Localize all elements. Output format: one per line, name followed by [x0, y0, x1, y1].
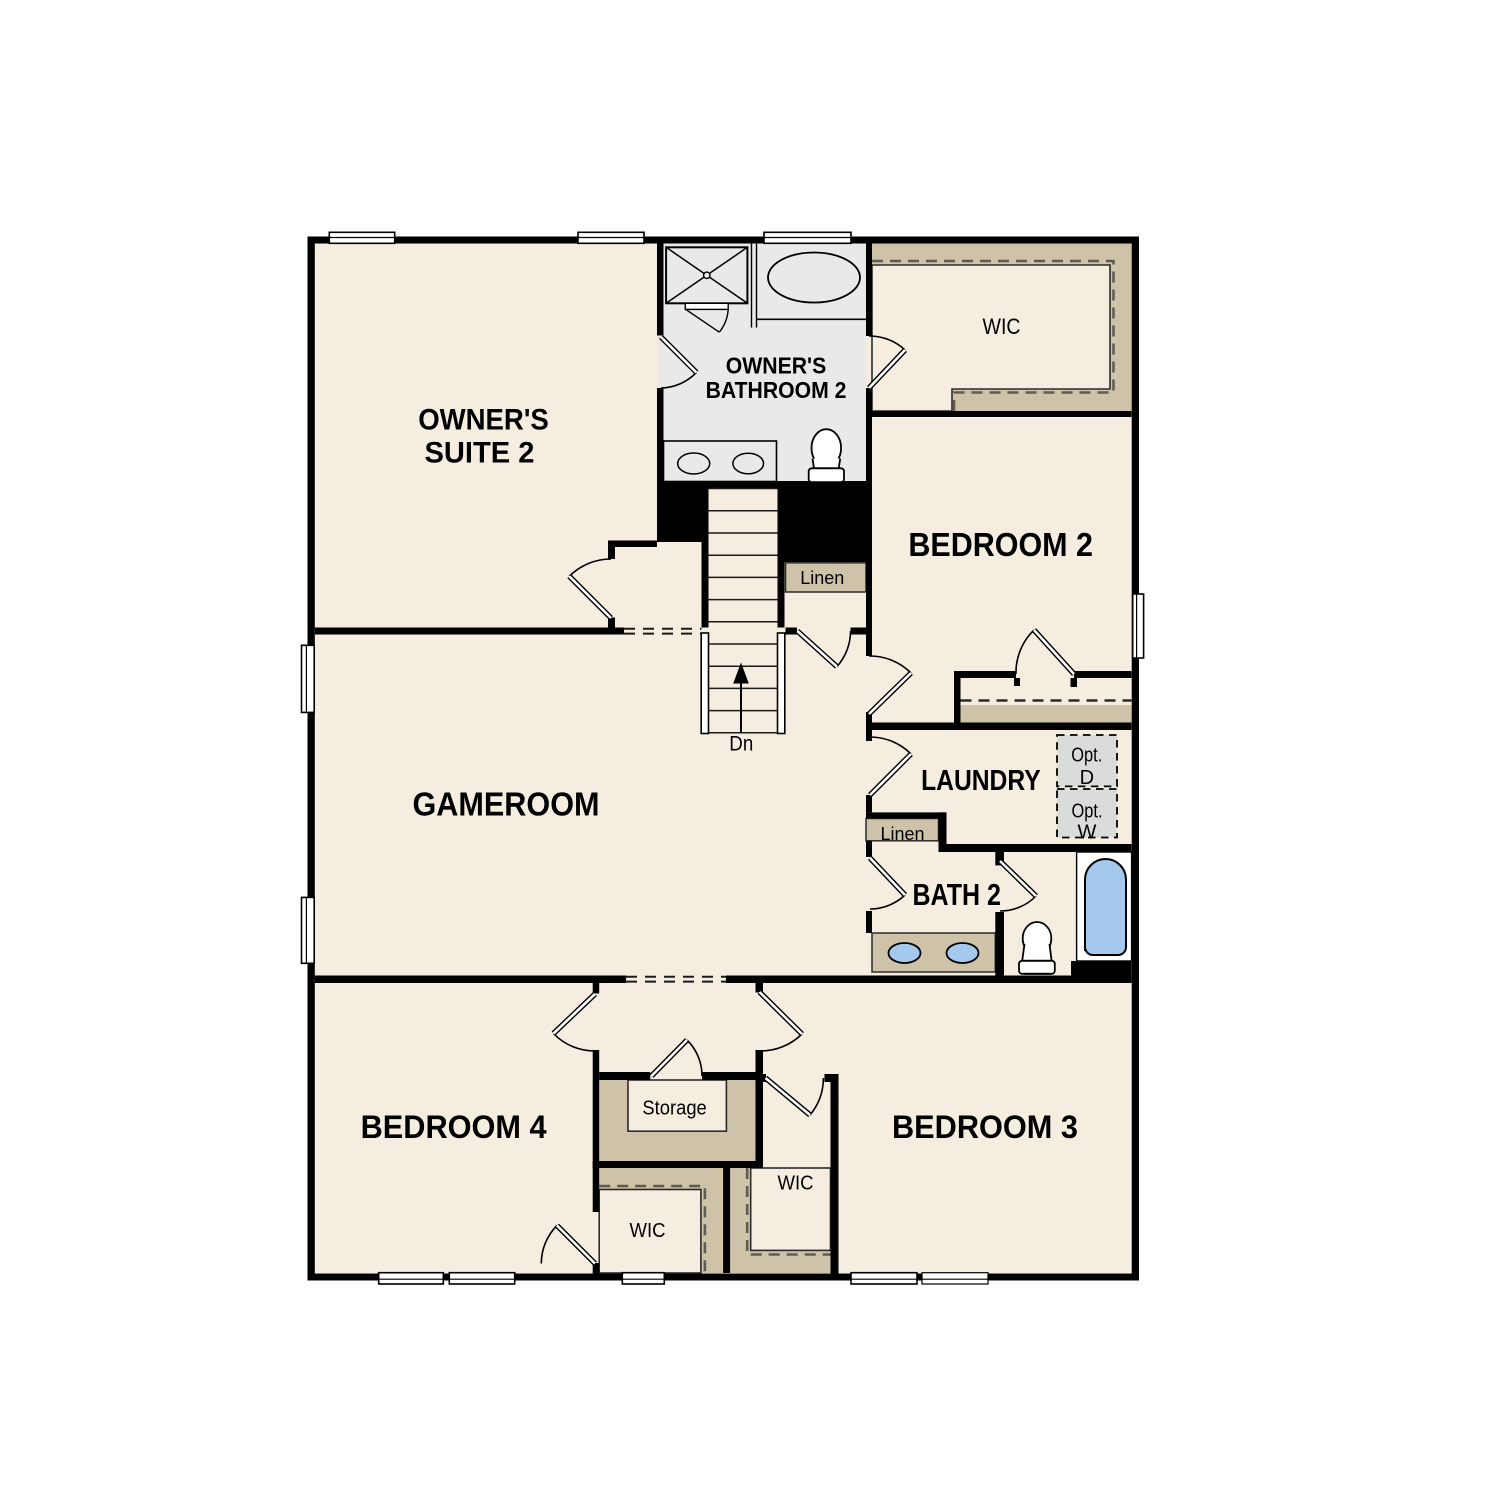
svg-text:Linen: Linen	[800, 568, 844, 588]
svg-text:GAMEROOM: GAMEROOM	[413, 786, 600, 823]
svg-text:BATHROOM 2: BATHROOM 2	[706, 377, 847, 403]
svg-text:WIC: WIC	[983, 314, 1021, 339]
svg-text:WIC: WIC	[630, 1220, 666, 1242]
svg-text:WIC: WIC	[778, 1173, 814, 1195]
svg-text:D: D	[1080, 767, 1094, 789]
svg-text:Dn: Dn	[729, 733, 753, 756]
svg-text:Opt.: Opt.	[1072, 801, 1103, 823]
svg-text:SUITE 2: SUITE 2	[425, 437, 535, 470]
svg-text:Linen: Linen	[881, 824, 925, 844]
svg-text:BEDROOM 2: BEDROOM 2	[908, 526, 1093, 563]
svg-text:BATH 2: BATH 2	[913, 877, 1001, 912]
svg-text:Storage: Storage	[642, 1097, 706, 1119]
svg-text:OWNER'S: OWNER'S	[418, 404, 549, 437]
svg-text:LAUNDRY: LAUNDRY	[921, 765, 1041, 797]
svg-text:W: W	[1078, 822, 1097, 844]
svg-text:BEDROOM 4: BEDROOM 4	[361, 1109, 547, 1145]
svg-text:OWNER'S: OWNER'S	[726, 353, 827, 379]
svg-text:Opt.: Opt.	[1071, 745, 1102, 767]
svg-text:BEDROOM 3: BEDROOM 3	[892, 1109, 1078, 1145]
